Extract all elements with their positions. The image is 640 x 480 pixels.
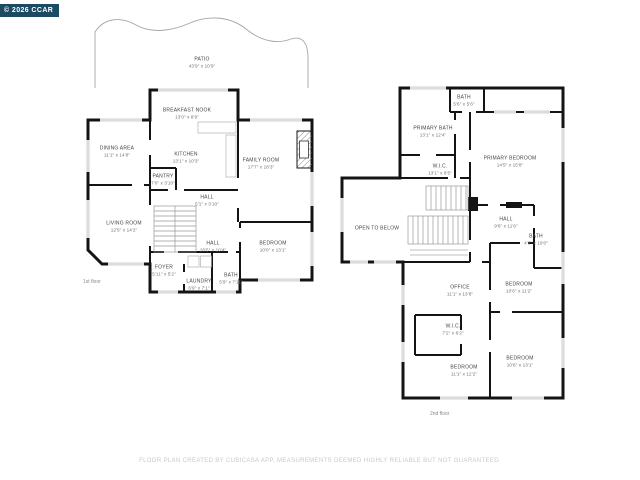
floor2-label: 2nd floor — [430, 411, 449, 417]
copyright-badge: © 2026 CCAR — [0, 4, 59, 17]
floor1-plan — [88, 18, 312, 292]
floorplan-graphics — [0, 0, 640, 480]
floor1-label: 1st floor — [83, 279, 101, 285]
footer-disclaimer: FLOOR PLAN CREATED BY CUBICASA APP. MEAS… — [0, 458, 640, 464]
floorplan-page: © 2026 CCAR PATIO 43'9" x 10'9" BREAKFAS… — [0, 0, 640, 480]
floor2-plan — [342, 88, 563, 398]
fireplace-icon — [297, 131, 312, 168]
patio-outline — [95, 18, 308, 88]
